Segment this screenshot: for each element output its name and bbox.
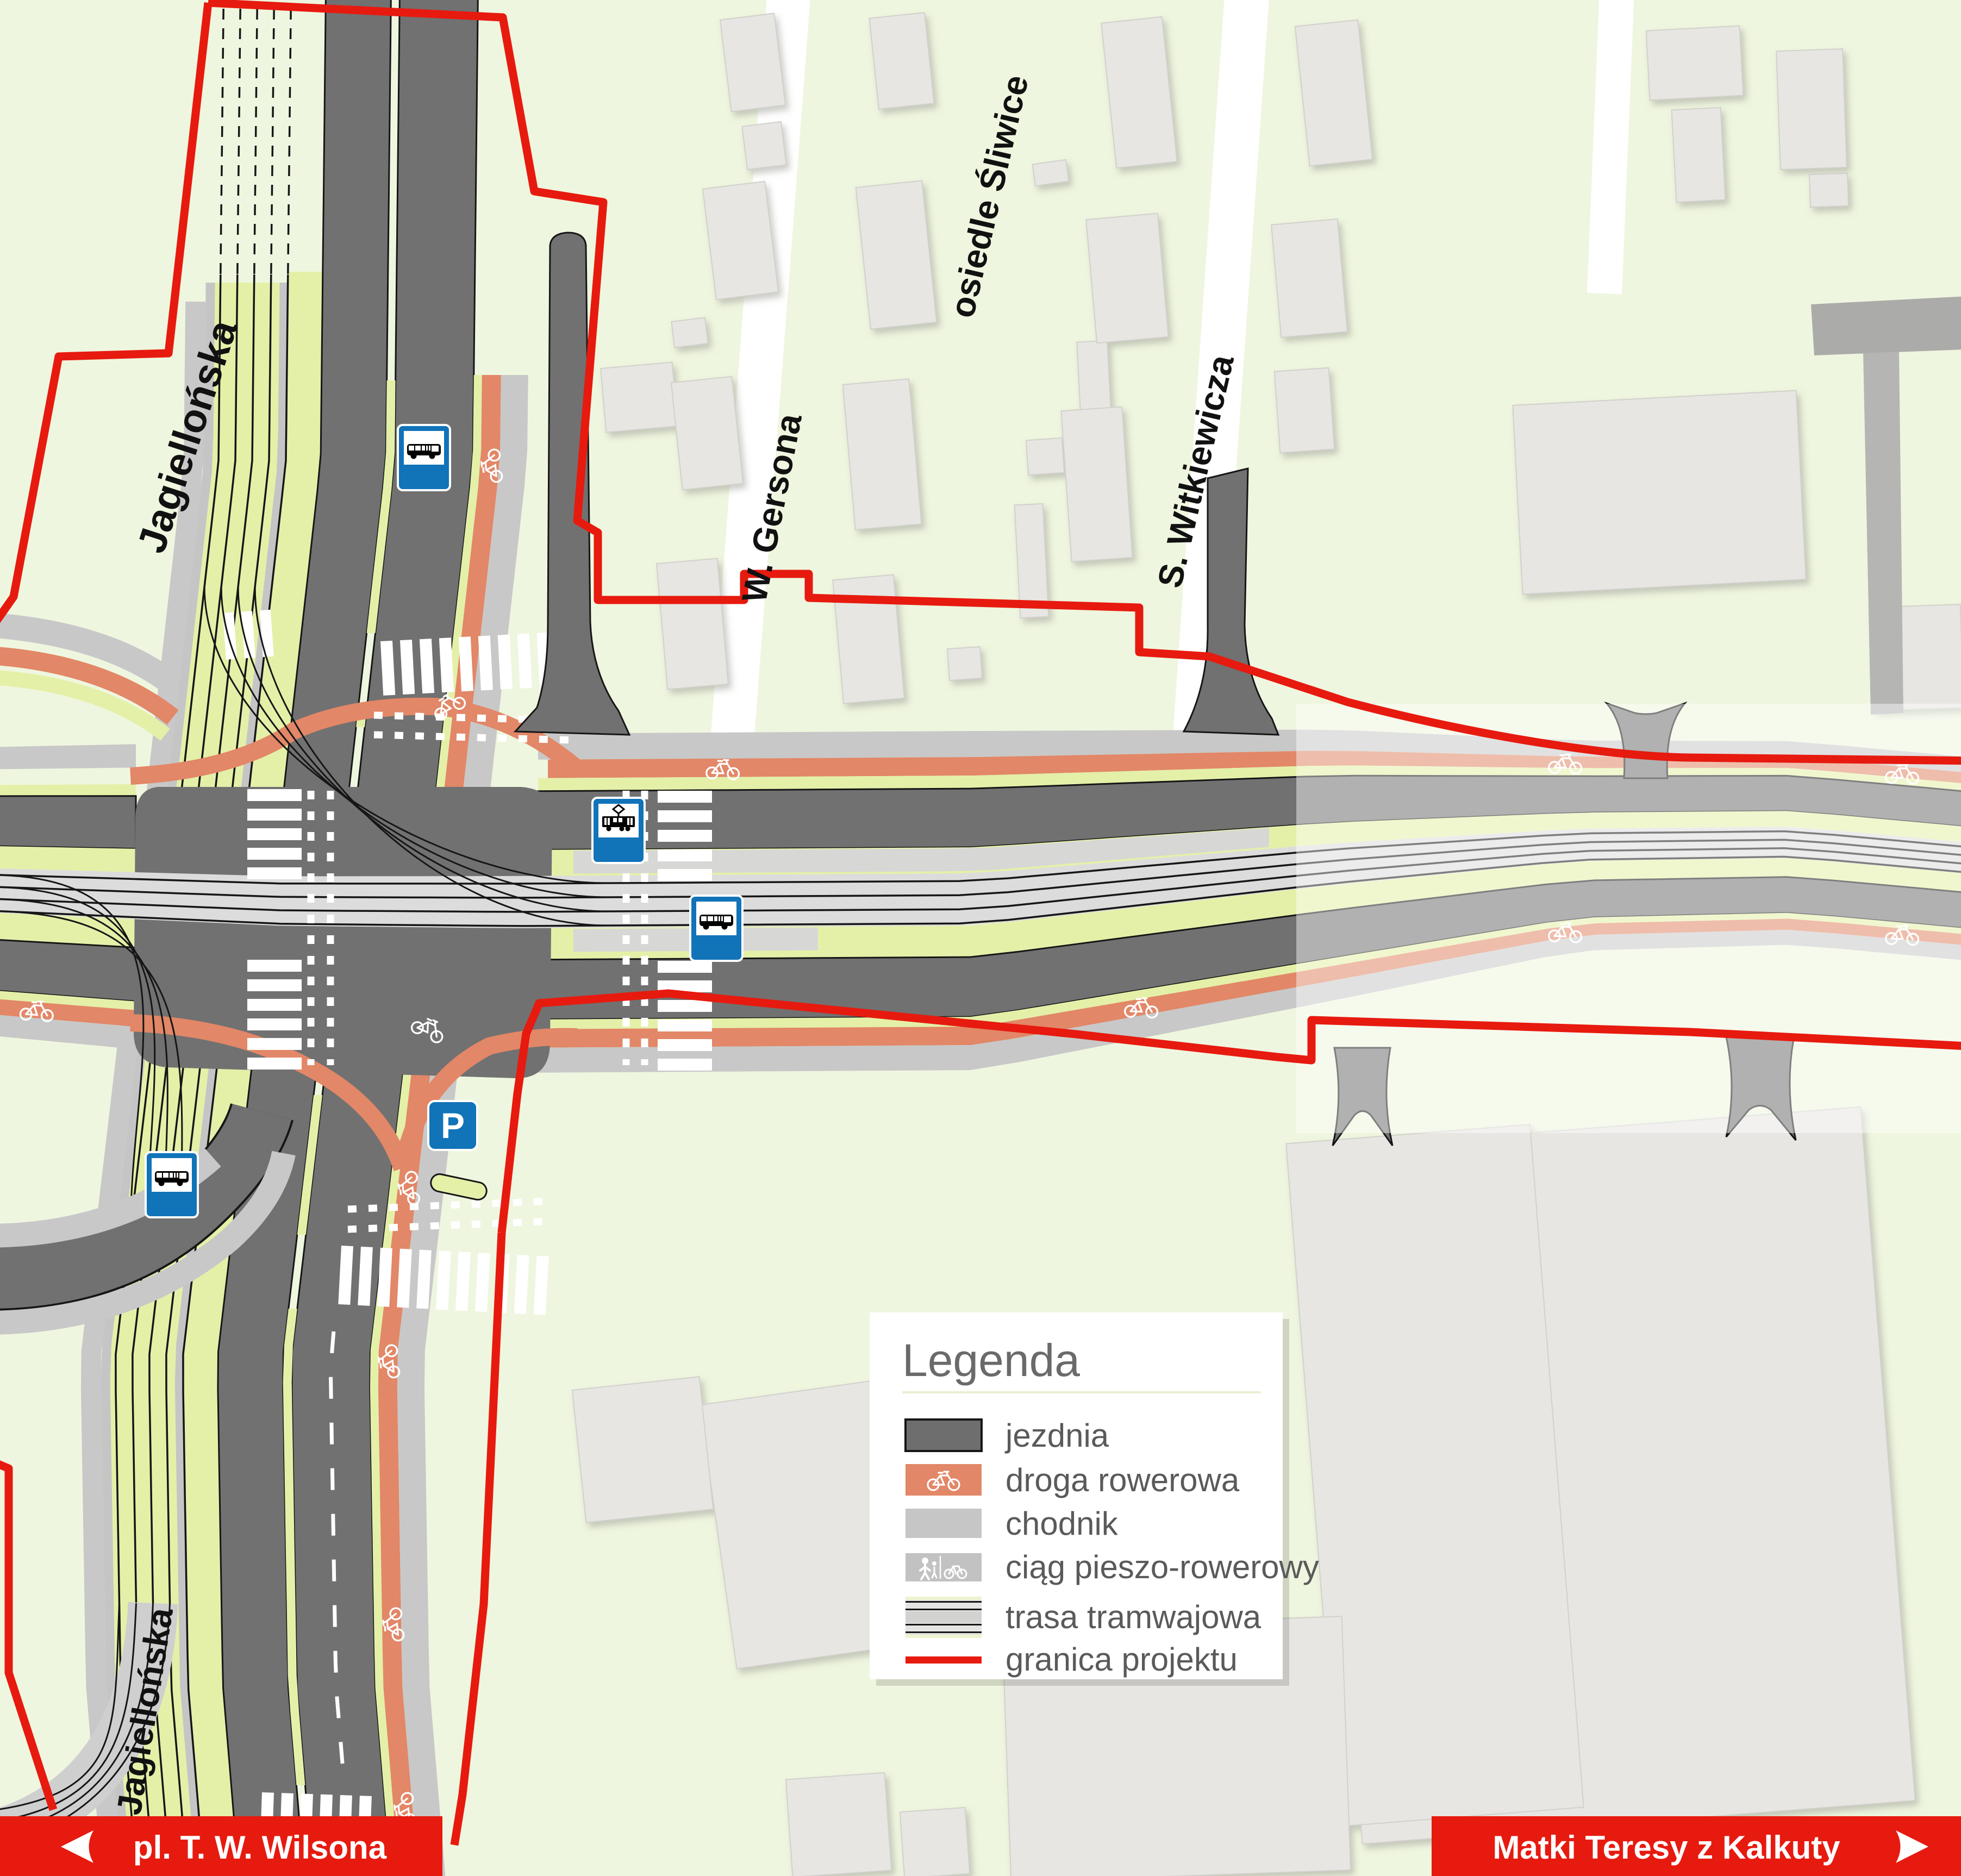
banner-right[interactable]: Matki Teresy z Kalkuty <box>1432 1816 1961 1876</box>
building <box>1776 49 1847 170</box>
building <box>601 362 678 432</box>
building <box>671 317 708 347</box>
building <box>869 12 934 109</box>
bus-stop-sign-icon <box>690 896 742 961</box>
building <box>1672 108 1726 202</box>
building <box>1271 219 1347 337</box>
legend-title: Legenda <box>902 1335 1080 1386</box>
legend: Legenda jezdnia droga rowerowa chodnik c… <box>870 1312 1319 1686</box>
building <box>900 1808 970 1876</box>
building <box>671 377 743 490</box>
legend-item-label: jezdnia <box>1004 1417 1109 1454</box>
building <box>856 180 937 329</box>
out-of-scope-fade <box>1296 704 1961 1133</box>
building <box>1061 407 1132 561</box>
building <box>1086 214 1168 343</box>
building <box>947 647 982 680</box>
building <box>1026 438 1064 475</box>
banner-left-label: pl. T. W. Wilsona <box>133 1829 387 1866</box>
legend-swatch-pedbike <box>905 1553 982 1581</box>
building <box>1513 391 1806 595</box>
legend-item-label: granica projektu <box>1006 1641 1238 1678</box>
building <box>657 559 728 690</box>
bus-stop-sign-icon <box>146 1152 198 1217</box>
building <box>1033 160 1069 186</box>
legend-swatch-bike <box>905 1464 982 1496</box>
building <box>833 575 904 704</box>
building <box>1809 173 1848 207</box>
legend-swatch-tram <box>905 1597 982 1638</box>
building <box>1275 368 1334 453</box>
parking-sign-icon <box>428 1101 477 1150</box>
building <box>703 182 778 299</box>
building <box>742 122 786 170</box>
banner-right-label: Matki Teresy z Kalkuty <box>1492 1829 1840 1866</box>
building <box>1646 26 1743 101</box>
legend-swatch-sidewalk <box>905 1509 982 1538</box>
building <box>786 1773 891 1876</box>
legend-swatch-road <box>905 1419 982 1451</box>
legend-item-label: trasa tramwajowa <box>1006 1599 1261 1635</box>
legend-item-label: droga rowerowa <box>1006 1462 1240 1498</box>
street-minor-ne <box>1604 0 1617 293</box>
building <box>843 379 922 530</box>
project-map: P <box>0 0 1961 1876</box>
tram-stop-sign-icon <box>592 798 645 863</box>
legend-swatch-boundary <box>905 1656 982 1664</box>
bus-stop-sign-icon <box>398 425 450 490</box>
legend-item-label: ciąg pieszo-rowerowy <box>1006 1549 1319 1585</box>
legend-item-label: chodnik <box>1006 1505 1119 1542</box>
building <box>572 1377 713 1522</box>
building <box>720 14 785 112</box>
legend-divider <box>902 1391 1261 1393</box>
banner-left[interactable]: pl. T. W. Wilsona <box>0 1816 442 1876</box>
